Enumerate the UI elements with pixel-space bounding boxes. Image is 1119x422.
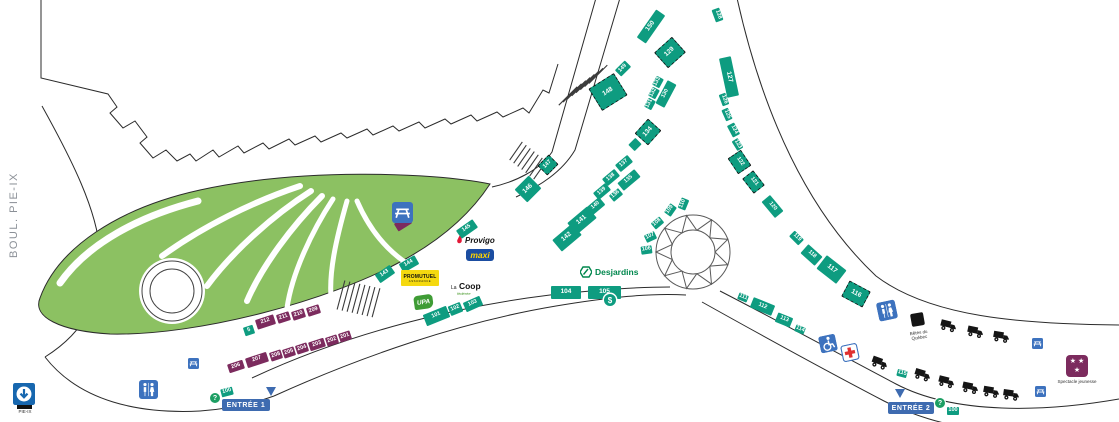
promutuel-logo: PROMUTUEL ASSURANCE — [401, 270, 439, 286]
site-map: 1001011021031041051061071081091101111121… — [0, 0, 1119, 422]
booth-106[interactable]: 106 — [640, 245, 652, 254]
toilets-icon — [139, 380, 158, 404]
metro-station-label: PIE-IX — [12, 409, 38, 414]
entrance-2-banner: ENTRÉE 2 — [888, 402, 934, 414]
building-edge — [41, 0, 558, 161]
arrow-icon — [266, 387, 276, 396]
dollar-icon: $ — [604, 294, 616, 306]
booth-104[interactable]: 104 — [551, 286, 581, 299]
provigo-flame-icon — [456, 235, 463, 245]
spectacle-icon: ★ ★★ — [1066, 355, 1088, 377]
truck-icon — [981, 384, 1002, 405]
picnic-icon — [188, 356, 199, 374]
truck-icon — [959, 379, 980, 400]
truck-icon — [991, 329, 1012, 350]
picnic-icon — [392, 202, 413, 228]
spectacle-jeunesse-label: Spectacle jeunesse — [1050, 379, 1104, 385]
street-label: BOUL. PIE-IX — [8, 146, 20, 258]
map-base-layer — [0, 0, 1119, 422]
picnic-icon — [1035, 384, 1046, 402]
question-icon: ? — [210, 393, 220, 403]
picnic-icon — [1032, 336, 1043, 354]
desjardins-hexagon-icon — [580, 266, 592, 278]
truck-icon — [964, 323, 985, 344]
entrance-1-banner: ENTRÉE 1 — [222, 399, 270, 411]
blacksq-icon — [910, 312, 925, 327]
provigo-logo: Provigo — [456, 235, 495, 245]
truck-icon — [1001, 387, 1021, 407]
booth-100[interactable]: 100 — [947, 407, 959, 415]
arrow-icon — [895, 389, 905, 398]
lacoop-logo: La Coop fédérée — [451, 282, 481, 296]
desjardins-logo: Desjardins — [580, 266, 638, 278]
maxi-logo: maxi — [466, 249, 494, 261]
question-icon: ? — [935, 398, 945, 408]
